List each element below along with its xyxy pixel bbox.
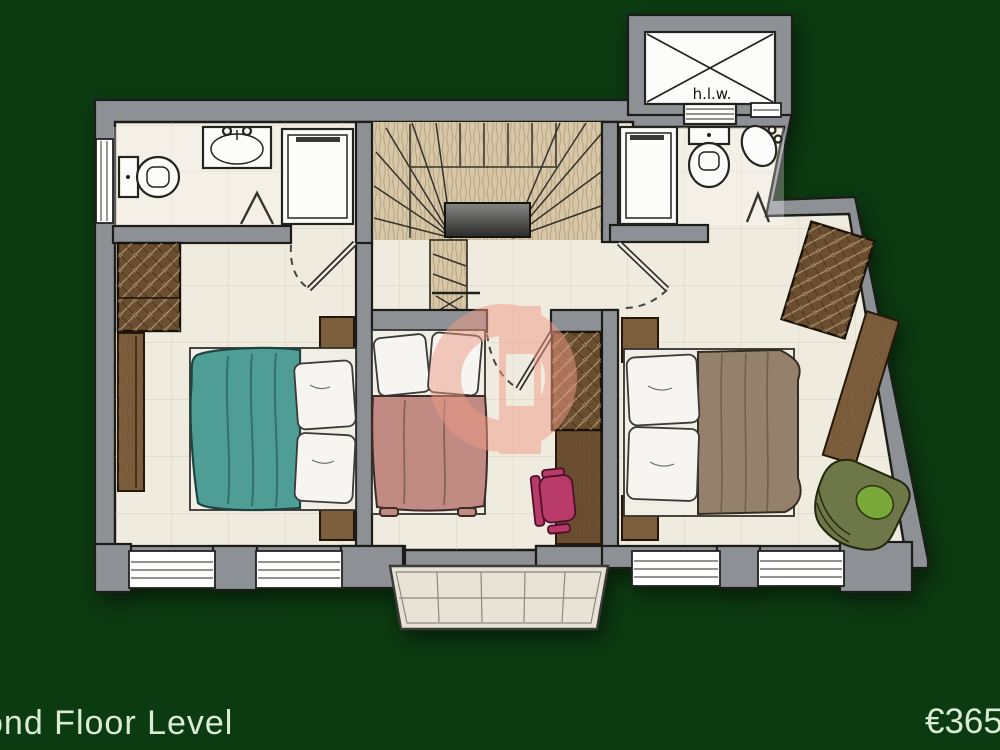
hlw-label: h.l.w. <box>693 85 732 103</box>
window <box>632 551 720 586</box>
building: h.l.w. <box>95 15 928 629</box>
side-window <box>96 139 113 223</box>
window <box>256 551 342 588</box>
price-label: €365 <box>925 702 1000 742</box>
floor-level-label: ond Floor Level <box>0 704 233 743</box>
window <box>758 551 844 586</box>
toilet <box>119 157 179 197</box>
hlw-vent-strip <box>684 104 736 124</box>
double-bed-brown <box>624 349 801 516</box>
double-bed-teal <box>190 348 356 510</box>
shower <box>282 129 353 224</box>
desk-chair <box>530 467 577 535</box>
balcony <box>390 566 608 629</box>
sideboard <box>118 333 144 491</box>
stair-landing <box>445 203 530 237</box>
floorplan-page: h.l.w. <box>0 0 1000 750</box>
sink <box>203 127 271 168</box>
shower <box>620 127 677 224</box>
toilet <box>689 127 729 187</box>
floorplan-drawing: h.l.w. <box>0 0 1000 750</box>
window <box>129 551 215 588</box>
wardrobe <box>118 243 180 331</box>
